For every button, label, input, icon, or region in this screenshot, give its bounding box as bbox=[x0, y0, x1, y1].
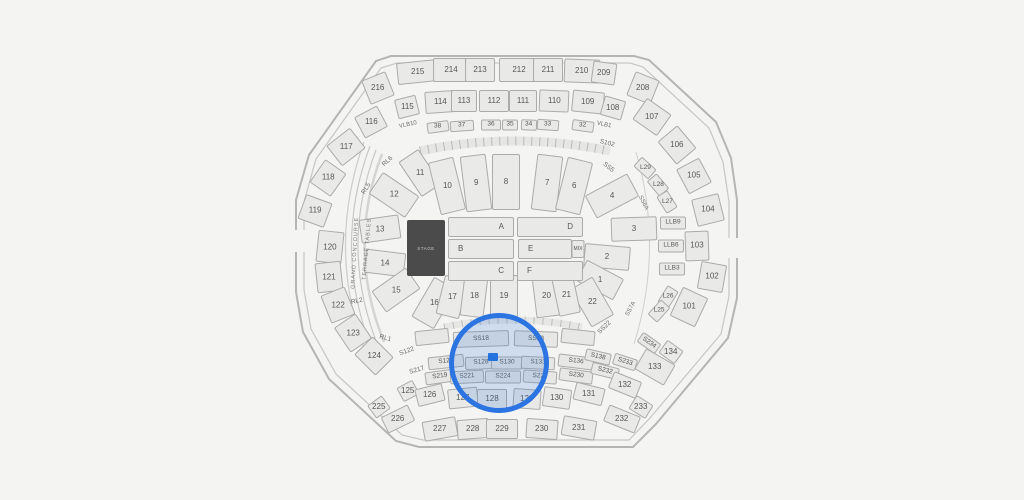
section-label: 229 bbox=[495, 425, 508, 433]
section-label: S232 bbox=[597, 366, 613, 376]
section-label: L26 bbox=[663, 294, 674, 301]
section-label: S219 bbox=[432, 373, 448, 382]
section-label: 17 bbox=[448, 293, 457, 301]
section-label: 117 bbox=[340, 143, 353, 151]
section-label: 232 bbox=[615, 415, 628, 423]
section-label: F bbox=[527, 267, 532, 275]
section-label: 128 bbox=[485, 395, 498, 403]
section-label: 115 bbox=[401, 103, 414, 111]
section-214[interactable]: 214 bbox=[433, 58, 469, 82]
section-label: 34 bbox=[525, 122, 532, 129]
section-label: 112 bbox=[488, 97, 501, 105]
section-label: 103 bbox=[690, 242, 703, 250]
section-label: 225 bbox=[372, 403, 385, 411]
section-label: 108 bbox=[606, 104, 619, 112]
section-label: 227 bbox=[433, 425, 446, 433]
section-3[interactable]: 3 bbox=[611, 216, 658, 242]
section-129[interactable]: 129 bbox=[512, 388, 541, 410]
section-label: L27 bbox=[662, 199, 673, 206]
section-label: 212 bbox=[512, 66, 525, 74]
section-label: B bbox=[458, 245, 463, 253]
section-S133[interactable]: S133 bbox=[521, 356, 556, 371]
section-label: 37 bbox=[458, 123, 465, 130]
section-LLB3[interactable]: LLB3 bbox=[659, 263, 685, 276]
section-label: A bbox=[499, 223, 504, 231]
section-label: 126 bbox=[423, 391, 436, 399]
section-label: 210 bbox=[575, 67, 588, 75]
section-label: 213 bbox=[473, 66, 486, 74]
section-D[interactable]: D bbox=[517, 217, 583, 237]
section-label: S227 bbox=[532, 373, 548, 381]
section-label: SS18 bbox=[473, 335, 489, 342]
section-S227[interactable]: S227 bbox=[523, 369, 558, 384]
section-F[interactable]: F bbox=[517, 261, 583, 281]
section-label: 19 bbox=[500, 292, 509, 300]
section-label: C bbox=[498, 267, 504, 275]
section-label: 118 bbox=[322, 174, 335, 182]
section-label: 233 bbox=[634, 403, 647, 411]
section-label: SS18 bbox=[528, 335, 544, 342]
section-label: 2 bbox=[605, 253, 609, 261]
section-label: S136 bbox=[568, 358, 584, 366]
section-113[interactable]: 113 bbox=[451, 90, 477, 112]
section-127[interactable]: 127 bbox=[447, 386, 479, 409]
stage-label: STAGE bbox=[417, 246, 434, 251]
section-19[interactable]: 19 bbox=[490, 275, 518, 317]
section-36[interactable]: 36 bbox=[481, 120, 501, 131]
section-label: 33 bbox=[544, 122, 551, 128]
section-label: 125 bbox=[401, 387, 414, 395]
section-SS18[interactable]: SS18 bbox=[453, 330, 510, 348]
section-E[interactable]: E bbox=[518, 239, 572, 259]
section-label: S224 bbox=[495, 374, 510, 381]
section-label: 208 bbox=[636, 84, 649, 92]
section-label: 35 bbox=[506, 122, 513, 129]
selected-section-marker[interactable] bbox=[488, 353, 498, 361]
tunnel-gap-right bbox=[721, 238, 739, 258]
section-label: 114 bbox=[434, 98, 447, 106]
section-label: 38 bbox=[434, 124, 441, 130]
section-112[interactable]: 112 bbox=[479, 90, 509, 112]
section-label: S125 bbox=[438, 358, 454, 366]
section-label: S133 bbox=[530, 359, 546, 366]
stage: STAGE bbox=[407, 220, 445, 276]
section-label: 230 bbox=[535, 425, 548, 433]
section-33[interactable]: 33 bbox=[537, 119, 560, 132]
section-label: 9 bbox=[474, 179, 478, 187]
section-label: 107 bbox=[645, 113, 658, 121]
section-label: 216 bbox=[371, 84, 384, 92]
section-label: 129 bbox=[520, 395, 533, 403]
section-8[interactable]: 8 bbox=[492, 154, 520, 210]
section-label: 214 bbox=[444, 66, 457, 74]
section-label: 105 bbox=[687, 172, 700, 180]
section-label: 133 bbox=[648, 363, 661, 371]
section-34[interactable]: 34 bbox=[521, 119, 537, 131]
section-label: 104 bbox=[701, 206, 714, 214]
loge-strip-top bbox=[420, 141, 610, 151]
section-label: S128 bbox=[473, 359, 488, 366]
section-label: LLB6 bbox=[663, 243, 678, 250]
section-label: 134 bbox=[664, 348, 677, 356]
section-130[interactable]: 130 bbox=[542, 386, 573, 410]
section-S224[interactable]: S224 bbox=[485, 371, 521, 384]
section-label: 211 bbox=[542, 66, 555, 74]
section-label: 109 bbox=[581, 98, 594, 106]
section-label: L25 bbox=[654, 308, 665, 315]
section-209[interactable]: 209 bbox=[591, 60, 618, 85]
section-label: 4 bbox=[610, 192, 614, 200]
section-label: 132 bbox=[618, 381, 631, 389]
section-label: MIX bbox=[574, 247, 583, 252]
section-label: 32 bbox=[579, 123, 586, 130]
arena-seat-map: 2162152142132122112102092081151141131121… bbox=[0, 0, 1024, 500]
section-label: 21 bbox=[562, 291, 571, 299]
section-label: 7 bbox=[545, 179, 549, 187]
section-S221[interactable]: S221 bbox=[450, 370, 485, 385]
section-label: 121 bbox=[322, 273, 335, 281]
section-label: 1 bbox=[598, 276, 602, 284]
section-label: S221 bbox=[459, 373, 475, 380]
section-label: 15 bbox=[392, 286, 401, 294]
section-label: 130 bbox=[550, 394, 563, 402]
section-label: L29 bbox=[640, 165, 651, 172]
section-label: 14 bbox=[381, 259, 390, 267]
section-label: 131 bbox=[582, 390, 595, 398]
section-213[interactable]: 213 bbox=[465, 58, 495, 82]
section-label: 106 bbox=[670, 141, 683, 149]
section-label: LLB3 bbox=[664, 266, 679, 273]
section-SS18[interactable]: SS18 bbox=[514, 330, 559, 348]
section-label: 111 bbox=[517, 97, 529, 105]
section-label: D bbox=[567, 223, 573, 231]
section-label: 6 bbox=[572, 182, 576, 190]
section-111[interactable]: 111 bbox=[509, 90, 537, 112]
section-label: 36 bbox=[487, 122, 494, 129]
section-228[interactable]: 228 bbox=[456, 418, 489, 440]
section-35[interactable]: 35 bbox=[502, 120, 518, 131]
section-label: 110 bbox=[548, 97, 561, 105]
section-label: 228 bbox=[466, 425, 479, 433]
section-110[interactable]: 110 bbox=[539, 89, 570, 112]
section-128[interactable]: 128 bbox=[477, 389, 507, 409]
section-label: 20 bbox=[542, 292, 551, 300]
section-label: L28 bbox=[653, 182, 664, 189]
section-37[interactable]: 37 bbox=[450, 120, 475, 133]
section-label: 231 bbox=[572, 424, 585, 432]
section-label: 18 bbox=[470, 292, 479, 300]
section-102[interactable]: 102 bbox=[697, 261, 727, 293]
section-label: S233 bbox=[617, 357, 633, 368]
section-LLB9[interactable]: LLB9 bbox=[660, 217, 686, 230]
section-label: S230 bbox=[568, 372, 584, 381]
section-label: 102 bbox=[705, 273, 718, 281]
section-label: 3 bbox=[632, 225, 636, 233]
section-label: 226 bbox=[391, 415, 404, 423]
tunnel-gap-left bbox=[290, 230, 306, 252]
section-label: 122 bbox=[331, 301, 344, 309]
section-B[interactable]: B bbox=[448, 239, 514, 259]
section-label: 127 bbox=[456, 394, 469, 402]
section-label: 101 bbox=[682, 303, 695, 311]
section-A[interactable]: A bbox=[448, 217, 514, 237]
section-label: S130 bbox=[499, 360, 514, 367]
section-label: 124 bbox=[367, 352, 380, 360]
section-label: LLB9 bbox=[665, 220, 680, 227]
section-label: 10 bbox=[443, 182, 452, 190]
section-120[interactable]: 120 bbox=[315, 230, 344, 265]
section-230[interactable]: 230 bbox=[525, 418, 558, 440]
section-label: 11 bbox=[416, 169, 424, 177]
section-label: 12 bbox=[390, 191, 399, 199]
section-label: 22 bbox=[588, 298, 597, 306]
section-C[interactable]: C bbox=[448, 261, 514, 281]
section-211[interactable]: 211 bbox=[533, 58, 563, 82]
section-label: 123 bbox=[346, 329, 359, 337]
section-MIX[interactable]: MIX bbox=[572, 240, 585, 258]
section-label: 119 bbox=[309, 207, 322, 215]
section-label: S138 bbox=[590, 352, 606, 362]
section-label: 8 bbox=[504, 178, 508, 186]
section-label: E bbox=[528, 245, 533, 253]
section-103[interactable]: 103 bbox=[684, 231, 709, 262]
section-label: 13 bbox=[376, 225, 385, 233]
section-label: 113 bbox=[458, 97, 471, 105]
seat-map-viewport: 2162152142132122112102092081151141131121… bbox=[0, 0, 1024, 500]
section-label: 116 bbox=[365, 118, 378, 126]
section-label: 215 bbox=[411, 68, 424, 76]
section-LLB6[interactable]: LLB6 bbox=[658, 240, 684, 253]
section-label: 209 bbox=[597, 69, 610, 77]
section-229[interactable]: 229 bbox=[486, 419, 518, 439]
section-label: 120 bbox=[323, 243, 336, 251]
